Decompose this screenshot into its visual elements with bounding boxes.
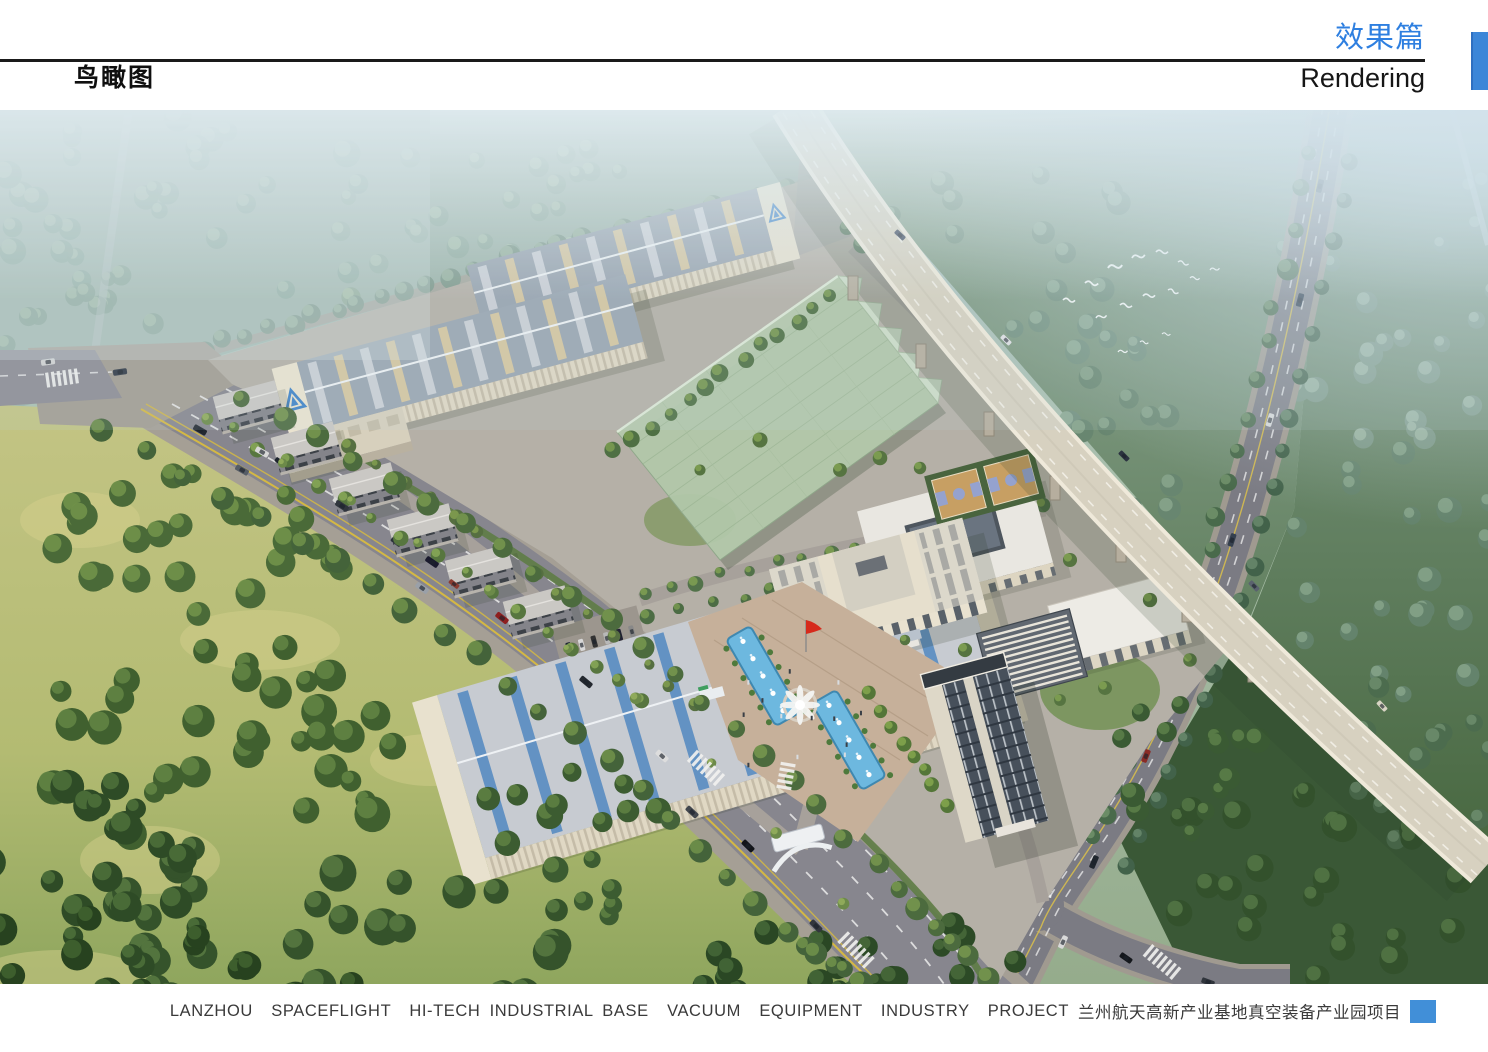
section-title-zh: 效果篇 [1335,22,1425,54]
header-accent-bar [1471,32,1488,90]
caption-square-icon [1410,1000,1436,1023]
section-title-en: Rendering [1300,63,1425,93]
aerial-rendering [0,110,1488,984]
fountain-sculpture [780,685,820,725]
caption-chinese: 兰州航天高新产业基地真空装备产业园项目 [1078,999,1401,1023]
caption-english: LANZHOU SPACEFLIGHT HI-TECH INDUSTRIAL B… [170,1002,1069,1021]
page-title: 鸟瞰图 [74,64,155,92]
project-caption: LANZHOU SPACEFLIGHT HI-TECH INDUSTRIAL B… [0,994,1436,1028]
scene-root [0,110,1488,984]
header-rule [0,59,1425,62]
presentation-page: 效果篇 Rendering 鸟瞰图 [0,0,1488,1052]
